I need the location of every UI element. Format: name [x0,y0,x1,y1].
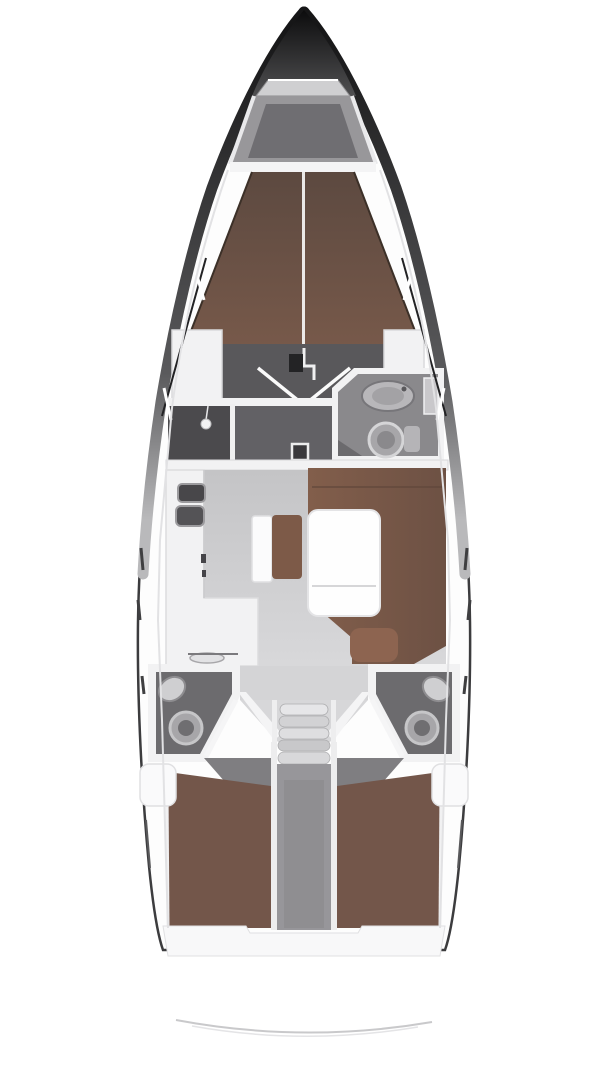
shower-compartment [168,406,232,462]
foredeck-frame-inner [248,104,358,158]
hull-shelf-starboard [432,764,468,806]
salon-table [308,510,380,616]
shower-head-icon [201,419,211,429]
v-berth-centerline [302,172,305,344]
aft-head-stbd-toilet-bowl [414,720,430,736]
aft-head-port-toilet-bowl [178,720,194,736]
galley-knob-1 [201,554,206,563]
galley-knob-2 [202,570,206,577]
aft-cabin-port-berth [168,772,271,928]
floorplan-canvas [0,0,608,1080]
hull-shelf-port [140,764,176,806]
mid-bulkhead [168,398,334,406]
deck-beam [230,162,376,172]
anchor-locker-hatch [256,80,350,96]
companionway-door-stop [292,444,308,460]
engine-compartment-inner [284,780,324,928]
forward-head-cistern [404,426,420,452]
salon-bench-back [252,516,272,582]
shower-wall [230,404,235,464]
yacht-floorplan [0,0,608,1080]
engine-wall-starboard [331,742,337,930]
forward-head-toilet-bowl [377,431,395,449]
vestibule-floor [235,406,332,462]
settee-armrest-cushion [350,628,398,662]
forward-head-faucet [402,387,407,392]
forward-head-sink-bowl [372,387,404,405]
forward-locker-port [172,330,222,400]
corridor-floor [240,666,368,700]
galley-sink-2 [176,506,204,526]
galley-sink-1 [178,484,205,502]
mast-post [289,354,303,372]
salon-bench-cushion [272,515,302,579]
engine-wall-port [271,742,277,930]
aft-cabin-stbd-berth [337,772,440,928]
companionway-steps [278,704,330,764]
